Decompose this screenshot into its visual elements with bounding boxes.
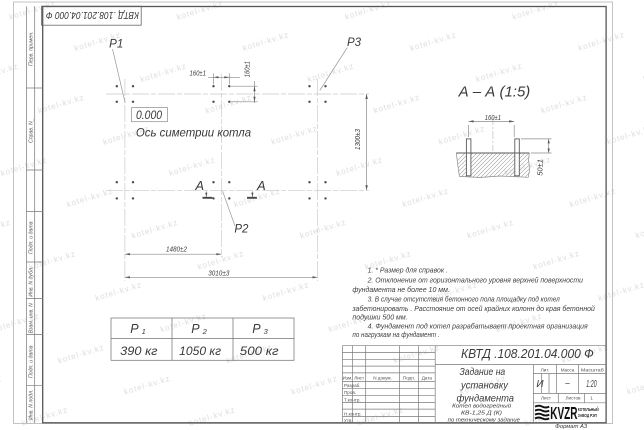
svg-text:1: 1: [590, 396, 593, 401]
svg-text:Утв.: Утв.: [344, 418, 353, 423]
svg-text:Лит.: Лит.: [541, 368, 550, 373]
svg-text:P2: P2: [234, 224, 249, 236]
svg-text:–: –: [564, 379, 570, 388]
svg-text:3. В случае отсутствия бетонн: 3. В случае отсутствия бетонного пола пл…: [368, 294, 560, 303]
svg-text:A: A: [194, 178, 204, 193]
svg-text:по техническому задание: по техническому задание: [448, 417, 520, 423]
svg-text:50±1: 50±1: [536, 159, 545, 176]
svg-text:Изм.: Изм.: [343, 376, 353, 381]
svg-text:Задание на: Задание на: [460, 366, 506, 378]
svg-text:Н.контр.: Н.контр.: [344, 411, 362, 416]
svg-text:Лист: Лист: [354, 376, 365, 381]
svg-text:Разраб.: Разраб.: [344, 383, 361, 388]
svg-text:КВТД .108.201.04.000 Ф: КВТД .108.201.04.000 Ф: [46, 9, 139, 20]
svg-text:1050 кг: 1050 кг: [179, 346, 221, 358]
svg-text:160±1: 160±1: [243, 61, 252, 77]
svg-text:фундамента не более 10 мм.: фундамента не более 10 мм.: [352, 285, 450, 294]
svg-text:Инв. N дубл.: Инв. N дубл.: [29, 267, 35, 297]
svg-text:P1: P1: [109, 39, 123, 51]
svg-text:Котел водогрейный: Котел водогрейный: [452, 403, 511, 410]
svg-text:ЗАВОД РЭП: ЗАВОД РЭП: [578, 413, 597, 419]
svg-text:Дата: Дата: [422, 376, 433, 381]
svg-text:160±1: 160±1: [485, 113, 501, 122]
svg-text:Лист: Лист: [541, 396, 552, 401]
svg-text:Ось симетрии котла: Ось симетрии котла: [136, 127, 251, 139]
svg-text:Подп. и дата: Подп. и дата: [29, 221, 35, 254]
svg-text:по нагрузкам на фундамент .: по нагрузкам на фундамент .: [352, 330, 439, 339]
svg-text:500 кг: 500 кг: [240, 346, 279, 358]
svg-text:Перв. примен.: Перв. примен.: [29, 31, 35, 65]
svg-text:Подп.: Подп.: [403, 376, 415, 381]
svg-text:Масса: Масса: [561, 368, 575, 373]
svg-text:Масштаб: Масштаб: [581, 368, 604, 373]
svg-text:1:20: 1:20: [586, 379, 597, 390]
svg-text:A: A: [256, 178, 266, 193]
svg-text:Инв. N подл.: Инв. N подл.: [29, 390, 35, 420]
svg-text:P3: P3: [347, 37, 362, 49]
svg-text:КВ-1,25 Д (К): КВ-1,25 Д (К): [461, 411, 502, 417]
svg-text:КВТД .108.201.04.000 Ф: КВТД .108.201.04.000 Ф: [461, 346, 594, 361]
svg-text:1. * Размер для справок .: 1. * Размер для справок .: [368, 266, 448, 275]
svg-text:А – А (1:5): А – А (1:5): [458, 83, 531, 100]
svg-text:установку: установку: [460, 379, 509, 391]
svg-text:Пров.: Пров.: [344, 390, 356, 395]
svg-text:Листов: Листов: [566, 396, 581, 401]
svg-text:подушки 500 мм.: подушки 500 мм.: [352, 312, 407, 321]
svg-text:Справ. N_: Справ. N_: [29, 118, 35, 143]
svg-text:N докум.: N докум.: [373, 376, 392, 381]
svg-text:KVZR: KVZR: [550, 403, 577, 423]
svg-text:2. Отклонение от горизонтальн: 2. Отклонение от горизонтального уровня …: [367, 275, 583, 284]
svg-text:Взам. инв. N: Взам. инв. N: [29, 303, 35, 333]
svg-text:3010±3: 3010±3: [208, 268, 230, 277]
svg-text:160±1: 160±1: [190, 68, 207, 77]
svg-text:И: И: [536, 379, 544, 390]
svg-text:Подп. и дата: Подп. и дата: [29, 345, 35, 378]
svg-text:0.000: 0.000: [136, 110, 163, 122]
svg-text:1480±2: 1480±2: [166, 244, 188, 253]
svg-text:1300±3: 1300±3: [353, 128, 362, 150]
svg-text:Т.контр.: Т.контр.: [344, 397, 361, 402]
svg-text:390 кг: 390 кг: [120, 346, 158, 358]
svg-text:Формат А3: Формат А3: [555, 424, 588, 430]
